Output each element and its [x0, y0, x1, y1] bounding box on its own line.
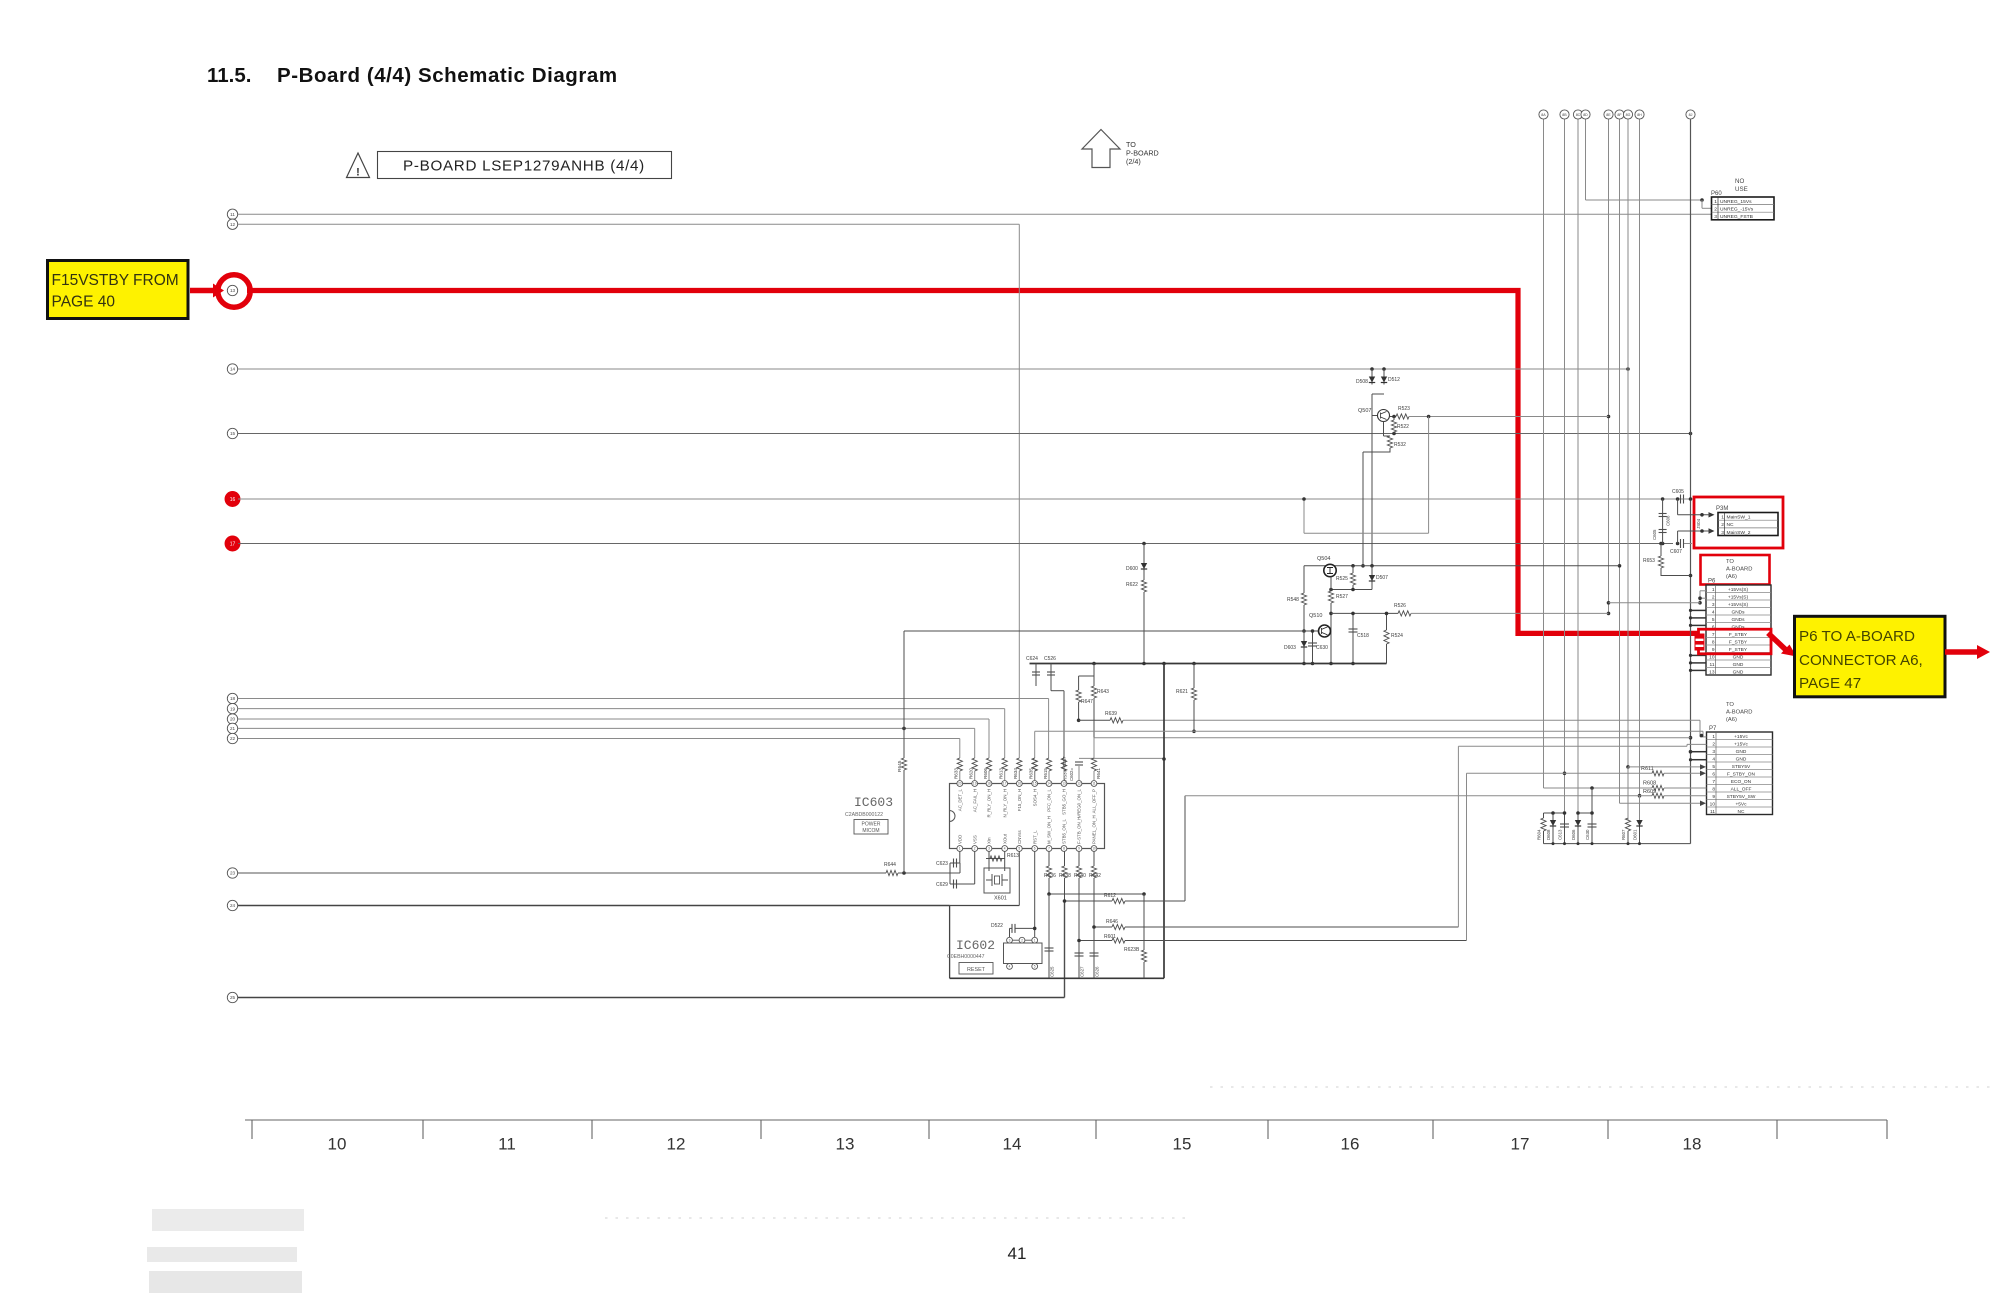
svg-text:16: 16 — [230, 497, 236, 503]
svg-text:R641: R641 — [1096, 768, 1101, 779]
svg-text:R523: R523 — [1398, 406, 1410, 412]
svg-text:R644: R644 — [884, 862, 896, 868]
svg-text:5: 5 — [1712, 617, 1715, 623]
svg-text:GND: GND — [1733, 669, 1744, 675]
svg-text:AC_DET_L: AC_DET_L — [958, 788, 963, 811]
svg-text:2: 2 — [1712, 741, 1715, 747]
svg-text:R613: R613 — [1007, 853, 1019, 859]
svg-text:7: 7 — [1712, 632, 1715, 638]
svg-text:R640: R640 — [1074, 873, 1086, 879]
svg-text:22: 22 — [230, 736, 236, 741]
svg-text:A-BOARD: A-BOARD — [1726, 567, 1752, 573]
svg-text:SOS4_H: SOS4_H — [1032, 789, 1037, 806]
svg-text:C627: C627 — [1080, 966, 1085, 977]
svg-text:D606: D606 — [1571, 829, 1576, 840]
svg-text:VDD: VDD — [958, 835, 963, 844]
svg-text:R532: R532 — [1394, 442, 1406, 448]
svg-text:P6 TO A-BOARD: P6 TO A-BOARD — [1799, 628, 1915, 645]
svg-text:RST_L: RST_L — [1032, 830, 1037, 844]
svg-text:P-Board (4/4) Schematic Diagra: P-Board (4/4) Schematic Diagram — [277, 64, 618, 87]
svg-text:13: 13 — [1062, 782, 1066, 786]
svg-text:R607: R607 — [1621, 829, 1626, 840]
svg-text:14: 14 — [230, 367, 236, 372]
svg-text:2: 2 — [974, 847, 976, 851]
svg-text:14: 14 — [1003, 1135, 1022, 1154]
svg-text:21: 21 — [230, 726, 236, 731]
svg-text:F_STBY_ON: F_STBY_ON — [1727, 771, 1756, 777]
svg-text:6: 6 — [1712, 771, 1715, 777]
svg-text:ALL_OFF_P: ALL_OFF_P — [1092, 789, 1097, 813]
svg-text:+15Vc: +15Vc — [1734, 734, 1748, 740]
svg-text:(A6): (A6) — [1726, 574, 1737, 580]
svg-text:D507: D507 — [1376, 575, 1388, 581]
svg-text:D600: D600 — [1126, 566, 1138, 572]
svg-text:NC: NC — [1727, 522, 1735, 528]
svg-text:GNDs: GNDs — [1731, 609, 1745, 615]
svg-text:C629: C629 — [936, 882, 948, 888]
svg-text:11: 11 — [230, 212, 235, 217]
svg-text:D603: D603 — [1284, 645, 1296, 651]
svg-text:F15_ON_H: F15_ON_H — [1017, 789, 1022, 811]
svg-text:+15Vc: +15Vc — [1734, 741, 1748, 747]
svg-text:11: 11 — [1710, 809, 1715, 815]
svg-text:11.5.: 11.5. — [207, 64, 251, 87]
svg-text:19: 19 — [230, 706, 236, 711]
svg-text:8C: 8C — [1576, 113, 1581, 117]
svg-text:3: 3 — [1712, 602, 1715, 608]
svg-text:24: 24 — [230, 903, 236, 908]
svg-text:15: 15 — [1033, 782, 1037, 786]
svg-text:8H: 8H — [1637, 113, 1642, 117]
svg-text:C518: C518 — [1357, 633, 1369, 639]
svg-text:!: ! — [356, 167, 360, 179]
svg-text:3: 3 — [988, 847, 990, 851]
svg-text:TO: TO — [1726, 702, 1734, 708]
svg-text:R633: R633 — [954, 768, 959, 779]
svg-text:R524: R524 — [1391, 633, 1403, 639]
svg-text:R609: R609 — [1643, 789, 1656, 795]
svg-text:UNREG_FSTB: UNREG_FSTB — [1720, 214, 1753, 220]
svg-text:8A: 8A — [1541, 113, 1546, 117]
svg-text:R622: R622 — [1126, 582, 1138, 588]
svg-text:+15Vs(S): +15Vs(S) — [1728, 594, 1749, 600]
svg-text:P-BOARD LSEP1279ANHB (4/4): P-BOARD LSEP1279ANHB (4/4) — [403, 158, 645, 175]
svg-text:4: 4 — [1712, 756, 1715, 762]
svg-text:R642: R642 — [1089, 873, 1101, 879]
svg-text:12: 12 — [230, 222, 236, 227]
svg-text:8B: 8B — [1562, 113, 1567, 117]
svg-text:R604: R604 — [1537, 829, 1542, 840]
svg-text:MainSW_2: MainSW_2 — [1727, 530, 1751, 536]
svg-text:C626: C626 — [1095, 966, 1100, 977]
svg-text:C608: C608 — [1666, 515, 1671, 526]
svg-text:P6: P6 — [1708, 579, 1716, 585]
svg-text:1: 1 — [1034, 938, 1036, 942]
svg-text:D601: D601 — [1633, 829, 1638, 840]
svg-text:F15VSTBY FROM: F15VSTBY FROM — [52, 272, 179, 289]
svg-text:7: 7 — [1048, 847, 1050, 851]
svg-text:GND: GND — [1733, 654, 1744, 660]
svg-text:4: 4 — [1009, 965, 1011, 969]
svg-text:C623: C623 — [936, 861, 948, 867]
svg-text:1: 1 — [1721, 515, 1724, 521]
svg-text:VREG0_ON_L: VREG0_ON_L — [1077, 788, 1082, 817]
svg-text:17: 17 — [1003, 782, 1007, 786]
svg-text:P60: P60 — [1711, 191, 1722, 197]
svg-text:R526: R526 — [1394, 603, 1406, 609]
svg-text:X601: X601 — [994, 896, 1007, 902]
svg-text:13: 13 — [1709, 669, 1715, 675]
svg-text:ALL_OFF: ALL_OFF — [1731, 786, 1752, 792]
svg-text:13: 13 — [230, 288, 236, 293]
svg-text:C613: C613 — [1558, 829, 1563, 840]
svg-text:18: 18 — [230, 696, 236, 701]
svg-text:11: 11 — [1710, 662, 1715, 668]
svg-text:CONNECTOR A6,: CONNECTOR A6, — [1799, 652, 1923, 669]
svg-text:F_STBY: F_STBY — [1729, 639, 1748, 645]
svg-text:A-BOARD: A-BOARD — [1726, 710, 1752, 716]
svg-text:20: 20 — [958, 782, 962, 786]
svg-text:XIn: XIn — [987, 837, 992, 844]
svg-text:14: 14 — [1047, 782, 1051, 786]
svg-text:RS37: RS37 — [1063, 769, 1068, 781]
svg-text:AC_FAIL_H: AC_FAIL_H — [972, 789, 977, 812]
svg-text:8G: 8G — [1626, 113, 1631, 117]
svg-text:P3M: P3M — [1716, 506, 1728, 512]
svg-text:R645: R645 — [897, 760, 903, 772]
svg-text:PAGE 40: PAGE 40 — [52, 294, 116, 311]
svg-text:GND: GND — [1736, 749, 1747, 755]
svg-text:GNDs: GNDs — [1731, 617, 1745, 623]
svg-text:+15Vs(S): +15Vs(S) — [1728, 587, 1749, 593]
svg-text:R522: R522 — [1397, 424, 1409, 430]
svg-text:C605: C605 — [1652, 529, 1657, 540]
svg-text:9: 9 — [1078, 847, 1080, 851]
svg-text:10: 10 — [1710, 801, 1716, 807]
svg-text:CNVss: CNVss — [1017, 830, 1022, 844]
svg-text:2: 2 — [1721, 522, 1724, 528]
svg-text:19: 19 — [973, 782, 977, 786]
svg-text:+5Vc: +5Vc — [1735, 801, 1747, 807]
svg-text:R646: R646 — [1106, 919, 1118, 925]
svg-text:8E: 8E — [1606, 113, 1611, 117]
svg-text:20: 20 — [230, 717, 236, 722]
svg-text:POWER: POWER — [862, 822, 881, 828]
svg-text:D508: D508 — [1356, 379, 1368, 385]
svg-text:F_STBY: F_STBY — [1729, 632, 1748, 638]
svg-text:6: 6 — [1034, 847, 1036, 851]
svg-text:10: 10 — [1709, 654, 1715, 660]
svg-text:8: 8 — [1712, 639, 1715, 645]
svg-text:R612: R612 — [1104, 893, 1116, 899]
svg-text:3: 3 — [1714, 214, 1717, 220]
svg-text:3: 3 — [1721, 530, 1724, 536]
svg-text:11: 11 — [1092, 782, 1096, 786]
svg-text:R643: R643 — [1097, 689, 1109, 695]
svg-text:1: 1 — [1712, 587, 1715, 593]
svg-text:12: 12 — [667, 1135, 686, 1154]
svg-text:STBY5V: STBY5V — [1732, 764, 1751, 770]
svg-text:R638: R638 — [1059, 873, 1071, 879]
svg-text:9: 9 — [1712, 647, 1715, 653]
svg-text:2: 2 — [1714, 207, 1717, 213]
svg-text:D608: D608 — [1546, 829, 1551, 840]
svg-text:C625: C625 — [1050, 966, 1055, 977]
svg-text:STB5_GO_H: STB5_GO_H — [1062, 789, 1067, 815]
svg-text:NO: NO — [1735, 178, 1744, 185]
svg-text:8: 8 — [1063, 847, 1065, 851]
svg-text:(A6): (A6) — [1726, 717, 1737, 723]
svg-text:1: 1 — [1712, 734, 1715, 740]
svg-text:4: 4 — [1712, 609, 1715, 615]
svg-text:R601: R601 — [1104, 934, 1116, 940]
svg-text:GND: GND — [1736, 756, 1747, 762]
svg-text:PAGE 47: PAGE 47 — [1799, 675, 1861, 692]
svg-text:UNREG_15Vs: UNREG_15Vs — [1720, 199, 1752, 205]
svg-text:R635: R635 — [1029, 768, 1034, 779]
svg-text:VSS: VSS — [972, 835, 977, 844]
svg-text:Q504: Q504 — [1317, 556, 1330, 562]
svg-text:1: 1 — [959, 847, 961, 851]
svg-text:16: 16 — [1341, 1135, 1360, 1154]
svg-text:17: 17 — [1511, 1135, 1530, 1154]
svg-text:C526: C526 — [1044, 656, 1056, 662]
svg-text:10: 10 — [1092, 847, 1096, 851]
svg-text:3: 3 — [1712, 749, 1715, 755]
svg-text:(2/4): (2/4) — [1126, 157, 1141, 166]
svg-text:F_STBY: F_STBY — [1729, 647, 1748, 653]
svg-text:C607: C607 — [1670, 549, 1682, 555]
svg-text:MICOM: MICOM — [862, 828, 879, 834]
svg-text:PANEL_ON_H: PANEL_ON_H — [1092, 815, 1097, 844]
svg-text:C630: C630 — [1316, 645, 1328, 651]
svg-text:R606: R606 — [983, 768, 988, 779]
svg-text:IC602: IC602 — [956, 938, 995, 953]
svg-text:2: 2 — [1021, 938, 1023, 942]
svg-text:C605: C605 — [1672, 489, 1684, 495]
svg-text:R620: R620 — [969, 768, 974, 779]
svg-text:23: 23 — [230, 871, 236, 876]
svg-text:R615: R615 — [1043, 768, 1048, 779]
svg-text:5: 5 — [1712, 764, 1715, 770]
svg-text:15: 15 — [1173, 1135, 1192, 1154]
svg-text:9: 9 — [1712, 794, 1715, 800]
svg-text:R621: R621 — [1176, 689, 1188, 695]
svg-text:15: 15 — [230, 431, 236, 436]
svg-text:GND: GND — [1733, 662, 1744, 668]
svg-text:C0EBH0000447: C0EBH0000447 — [947, 954, 985, 960]
svg-text:10: 10 — [328, 1135, 347, 1154]
svg-text:18: 18 — [1683, 1135, 1702, 1154]
svg-text:8: 8 — [1712, 786, 1715, 792]
svg-text:25: 25 — [230, 995, 236, 1000]
svg-text:MainSW_1: MainSW_1 — [1727, 515, 1751, 521]
svg-text:5: 5 — [1018, 847, 1020, 851]
svg-text:17: 17 — [230, 541, 236, 547]
svg-text:RESET: RESET — [967, 967, 986, 973]
svg-text:STBY5V_SW: STBY5V_SW — [1727, 794, 1756, 800]
svg-text:ECO_ON: ECO_ON — [1731, 779, 1752, 785]
svg-text:F-STB_ON_H: F-STB_ON_H — [1077, 817, 1082, 844]
svg-text:C602=: C602= — [1069, 768, 1074, 781]
svg-text:R527: R527 — [1336, 594, 1348, 600]
svg-text:C624: C624 — [1026, 656, 1038, 662]
svg-text:5: 5 — [1034, 965, 1036, 969]
svg-text:3: 3 — [1009, 938, 1011, 942]
svg-text:Q507: Q507 — [1358, 408, 1371, 414]
svg-text:13: 13 — [836, 1135, 855, 1154]
svg-text:R613: R613 — [999, 768, 1004, 779]
svg-text:R548: R548 — [1287, 597, 1299, 603]
svg-text:2: 2 — [1712, 594, 1715, 600]
svg-text:TO: TO — [1726, 559, 1734, 565]
svg-text:R647: R647 — [1081, 699, 1093, 705]
svg-text:C2ABDB000122: C2ABDB000122 — [845, 812, 883, 818]
svg-text:STB5_ON_L: STB5_ON_L — [1062, 819, 1067, 844]
svg-text:41: 41 — [1008, 1244, 1027, 1263]
svg-text:JS04: JS04 — [1696, 518, 1701, 529]
svg-text:NC: NC — [1738, 809, 1745, 815]
svg-text:C630: C630 — [1585, 829, 1590, 840]
svg-text:P7: P7 — [1709, 726, 1717, 732]
svg-text:M_SW_ON_H: M_SW_ON_H — [1047, 816, 1052, 844]
svg-text:R653: R653 — [1643, 558, 1655, 564]
svg-text:7: 7 — [1712, 779, 1715, 785]
svg-text:16: 16 — [1018, 782, 1022, 786]
svg-text:IC603: IC603 — [854, 795, 893, 810]
svg-text:4: 4 — [1004, 847, 1006, 851]
svg-text:XOut: XOut — [1002, 833, 1007, 844]
svg-text:PFC_ON_L: PFC_ON_L — [1047, 788, 1052, 811]
svg-text:12: 12 — [1077, 782, 1081, 786]
svg-text:R_RLY_ON_H: R_RLY_ON_H — [987, 789, 992, 817]
svg-text:R525: R525 — [1336, 576, 1348, 582]
svg-text:Q510: Q510 — [1309, 613, 1322, 619]
svg-text:11: 11 — [498, 1135, 516, 1154]
svg-text:N_RLY_ON_H: N_RLY_ON_H — [1002, 789, 1007, 817]
svg-text:USE: USE — [1735, 186, 1748, 193]
svg-text:R623B: R623B — [1124, 947, 1140, 953]
svg-text:R636: R636 — [1044, 873, 1056, 879]
svg-text:8D: 8D — [1583, 113, 1588, 117]
svg-text:18: 18 — [987, 782, 991, 786]
svg-text:8J: 8J — [1689, 113, 1693, 117]
svg-text:D512: D512 — [1388, 377, 1400, 383]
svg-text:R639: R639 — [1105, 711, 1117, 717]
svg-text:UNREG_-15Vs: UNREG_-15Vs — [1720, 207, 1754, 213]
svg-text:+15Vs(S): +15Vs(S) — [1728, 602, 1749, 608]
svg-text:R608: R608 — [1643, 781, 1656, 787]
svg-text:1: 1 — [1714, 199, 1717, 205]
svg-text:R634: R634 — [1013, 768, 1018, 779]
svg-text:D522: D522 — [991, 923, 1003, 929]
